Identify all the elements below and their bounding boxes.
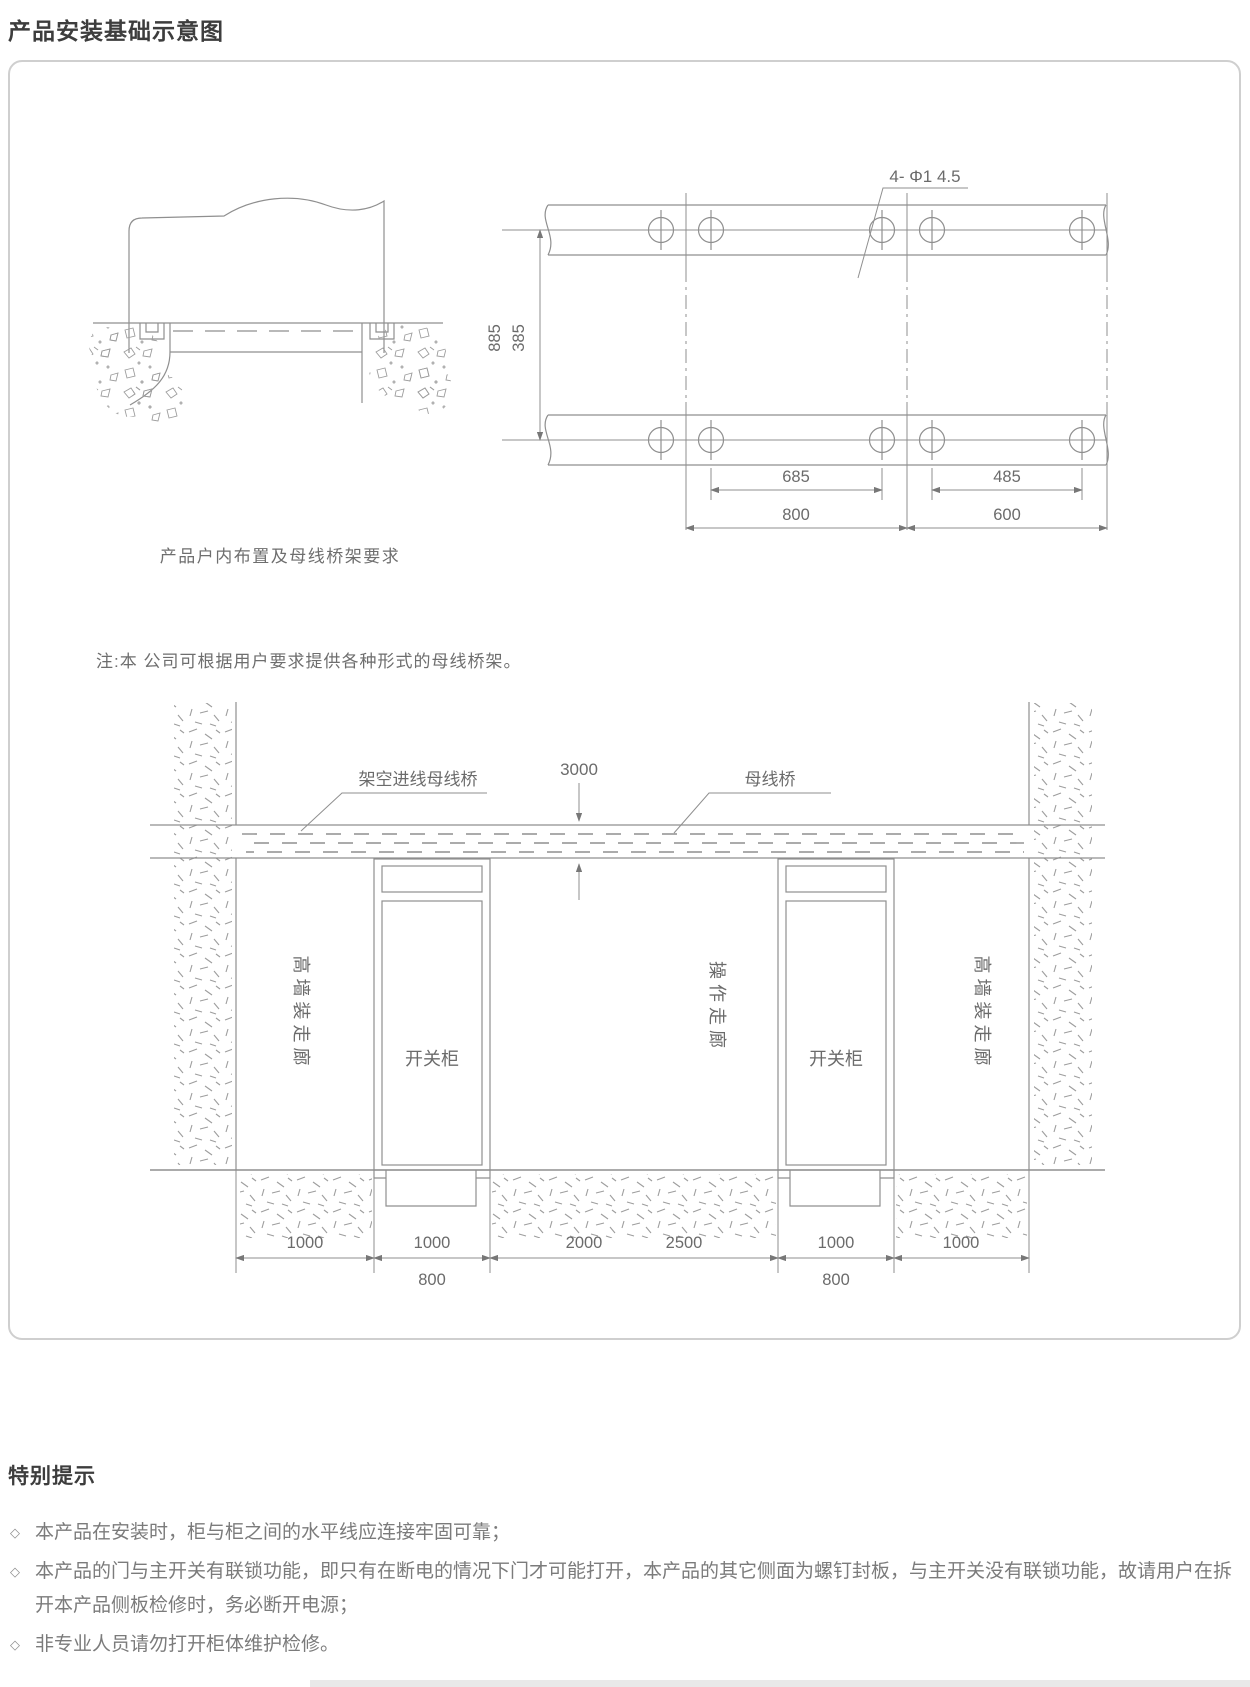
dim-800: 800 — [782, 506, 810, 524]
overhead-busbar-label: 架空进线母线桥 — [359, 770, 478, 789]
notice-text: 非专业人员请勿打开柜体维护检修。 — [35, 1634, 339, 1655]
dim-cab2-1000: 1000 — [818, 1234, 855, 1252]
dim-left-1000: 1000 — [287, 1234, 324, 1252]
concrete-rubble — [89, 323, 452, 425]
diamond-bullet-icon: ◇ — [10, 1516, 20, 1550]
left-corridor-label: 高墙装走廊 — [291, 956, 311, 1071]
cabinet-2 — [778, 859, 894, 1170]
room-section-diagram: 架空进线母线桥 3000 母线桥 高墙装走廊 开关柜 操作走廊 开关柜 高墙装走… — [150, 695, 1110, 1295]
special-notice-list: ◇ 本产品在安装时，柜与柜之间的水平线应连接牢固可靠； ◇ 本产品的门与主开关有… — [8, 1516, 1246, 1667]
indoor-layout-caption: 产品户内布置及母线桥架要求 — [140, 542, 420, 567]
list-item: ◇ 非专业人员请勿打开柜体维护检修。 — [8, 1628, 1246, 1662]
dim-corridor-2500: 2500 — [666, 1234, 703, 1252]
right-corridor-label: 高墙装走廊 — [972, 956, 992, 1071]
hole-diameter-label: 4- Φ1 4.5 — [889, 167, 960, 186]
wall-lines — [236, 702, 1029, 1170]
cabinet-2-label: 开关柜 — [809, 1049, 863, 1069]
list-item: ◇ 本产品的门与主开关有联锁功能，即只有在断电的情况下门才可能打开，本产品的其它… — [8, 1555, 1246, 1623]
dim-cab1-800: 800 — [418, 1271, 446, 1289]
dim-600: 600 — [993, 506, 1021, 524]
diamond-bullet-icon: ◇ — [10, 1555, 20, 1589]
cabinet-boundary-lines — [686, 193, 1107, 530]
busbar-note: 注:本 公司可根据用户要求提供各种形式的母线桥架。 — [96, 647, 521, 672]
cabinet-1 — [374, 859, 490, 1170]
dim-cab2-800: 800 — [822, 1271, 850, 1289]
center-corridor-label: 操作走廊 — [707, 961, 727, 1053]
dim-3000: 3000 — [560, 760, 598, 779]
busbar-label: 母线桥 — [745, 770, 796, 789]
cabinet-outline — [129, 198, 384, 353]
dim-685: 685 — [782, 468, 810, 486]
dim-corridor-2000: 2000 — [566, 1234, 603, 1252]
page-title: 产品安装基础示意图 — [8, 12, 224, 46]
dim-cab1-1000: 1000 — [414, 1234, 451, 1252]
special-notice-heading: 特别提示 — [8, 1460, 96, 1490]
hole-label-leader — [858, 188, 968, 278]
dim-485: 485 — [993, 468, 1021, 486]
busbar-hatching — [242, 834, 1024, 852]
diamond-bullet-icon: ◇ — [10, 1628, 20, 1662]
next-section-divider — [310, 1680, 1250, 1687]
dim-385: 385 — [510, 324, 528, 352]
document-page: 产品安装基础示意图 — [0, 0, 1250, 1687]
indoor-foundation-diagram — [78, 185, 458, 495]
diagram-frame: 产品户内布置及母线桥架要求 — [8, 60, 1241, 1340]
dim-right-1000: 1000 — [943, 1234, 980, 1252]
notice-text: 本产品在安装时，柜与柜之间的水平线应连接牢固可靠； — [35, 1522, 510, 1543]
channel-rail-drawing: 4- Φ1 4.5 885 385 685 485 800 600 — [488, 148, 1110, 540]
notice-text: 本产品的门与主开关有联锁功能，即只有在断电的情况下门才可能打开，本产品的其它侧面… — [35, 1561, 1232, 1616]
list-item: ◇ 本产品在安装时，柜与柜之间的水平线应连接牢固可靠； — [8, 1516, 1246, 1550]
cabinet-1-label: 开关柜 — [405, 1049, 459, 1069]
dim-885: 885 — [488, 324, 504, 352]
